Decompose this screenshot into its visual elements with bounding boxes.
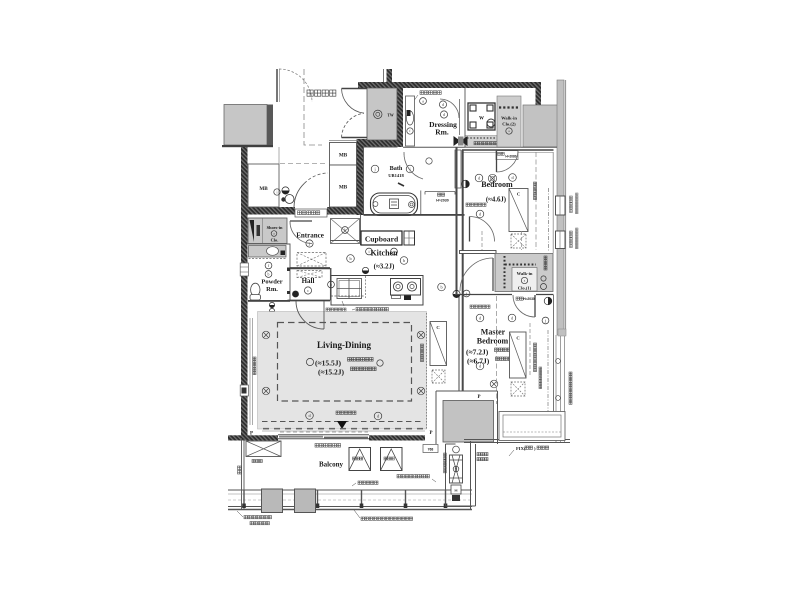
svg-text:c: c xyxy=(307,288,309,293)
svg-text:Shoes-in: Shoes-in xyxy=(267,225,283,230)
svg-text:b: b xyxy=(268,272,270,276)
svg-text:FIX(: FIX( xyxy=(516,446,526,451)
svg-text:Clo.: Clo. xyxy=(271,238,279,243)
svg-text:b: b xyxy=(349,256,351,261)
svg-text:C: C xyxy=(516,336,519,341)
svg-text:Walk-in: Walk-in xyxy=(501,116,517,121)
svg-text:(≈3.2J): (≈3.2J) xyxy=(374,263,395,271)
svg-text:Powder: Powder xyxy=(261,279,282,286)
svg-text:b: b xyxy=(403,258,405,263)
svg-text:Master: Master xyxy=(481,328,506,337)
svg-text:UB1418: UB1418 xyxy=(388,173,404,178)
svg-text:P: P xyxy=(477,395,480,400)
svg-text:j: j xyxy=(544,318,546,323)
svg-text:Clo.(2): Clo.(2) xyxy=(502,122,516,127)
svg-text:(≈15.2J): (≈15.2J) xyxy=(318,368,344,377)
svg-text:(≈15.5J): (≈15.5J) xyxy=(315,359,341,368)
svg-text:C: C xyxy=(517,192,520,197)
svg-text:Hall: Hall xyxy=(302,277,315,285)
svg-text:b: b xyxy=(330,283,332,287)
svg-text:Walk-in: Walk-in xyxy=(517,271,533,276)
svg-text:H≈2080: H≈2080 xyxy=(505,155,516,159)
svg-text:b: b xyxy=(344,228,346,232)
svg-text:Rm.: Rm. xyxy=(435,128,449,137)
svg-text:d: d xyxy=(442,103,444,107)
svg-text:d: d xyxy=(443,113,445,117)
svg-text:Balcony: Balcony xyxy=(319,461,344,469)
svg-text:Cupboard: Cupboard xyxy=(365,235,399,244)
svg-text:MB: MB xyxy=(339,153,348,159)
svg-text:P: P xyxy=(429,431,432,436)
svg-text:C: C xyxy=(436,325,439,330)
svg-text:Bedroom: Bedroom xyxy=(481,180,513,189)
svg-text:Bedroom: Bedroom xyxy=(477,337,509,346)
svg-text:M: M xyxy=(455,467,458,471)
svg-text:(≈4.6J): (≈4.6J) xyxy=(486,197,506,204)
svg-text:Entrance: Entrance xyxy=(296,232,324,240)
svg-text:(≈7.2J): (≈7.2J) xyxy=(466,348,489,357)
svg-text:Living-Dining: Living-Dining xyxy=(317,340,372,350)
svg-text:j: j xyxy=(465,291,467,296)
svg-text:P: P xyxy=(250,432,253,437)
svg-text:MB: MB xyxy=(339,185,348,191)
svg-text:j: j xyxy=(373,166,375,171)
svg-text:i: i xyxy=(368,250,369,254)
svg-text:MB: MB xyxy=(259,186,268,192)
svg-text:Clo.(1): Clo.(1) xyxy=(518,286,532,291)
svg-text:i: i xyxy=(277,190,278,194)
svg-text:Bath: Bath xyxy=(390,165,403,172)
svg-text:768: 768 xyxy=(428,448,434,452)
svg-text:Kitchen: Kitchen xyxy=(370,249,398,258)
svg-text:H≈2030: H≈2030 xyxy=(523,297,535,301)
svg-text:H≈2030: H≈2030 xyxy=(436,199,449,203)
svg-text:W: W xyxy=(479,117,484,122)
svg-text:Rm.: Rm. xyxy=(266,286,278,293)
svg-text:TW: TW xyxy=(387,113,394,117)
svg-text:b: b xyxy=(440,285,442,290)
